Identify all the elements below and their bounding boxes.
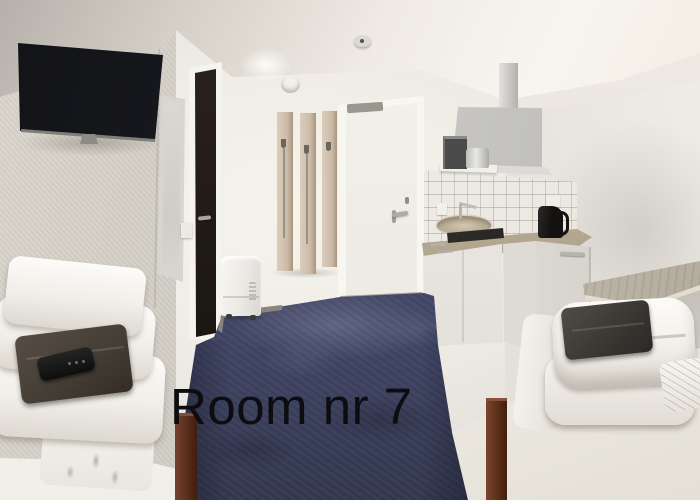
- tv-mount: [80, 134, 98, 144]
- dehumidifier-wheel: [250, 315, 256, 320]
- right-bed-frame: [486, 398, 507, 500]
- dehumidifier-vent: [249, 282, 256, 302]
- dehumidifier-wheel: [226, 314, 232, 319]
- remote-button: [68, 362, 71, 365]
- wrapped-pillow: [658, 357, 700, 413]
- faucet: [459, 203, 462, 219]
- folded-duvet: [3, 255, 147, 337]
- kettle-handle: [557, 211, 569, 236]
- coat-hook: [326, 142, 331, 151]
- coat-hanger-rod: [283, 148, 285, 238]
- cooking-pot: [466, 148, 489, 168]
- coat-rack-plank: [277, 112, 293, 271]
- light-switch: [181, 223, 192, 238]
- microwave: [443, 136, 467, 169]
- coat-hook: [304, 145, 309, 154]
- range-hood-chimney: [499, 63, 518, 108]
- coat-hook: [281, 139, 286, 148]
- coat-hanger-rod: [306, 154, 308, 244]
- room-number-caption: Room nr 7: [170, 377, 413, 436]
- coat-rack-plank: [300, 113, 316, 274]
- smoke-detector-dot: [360, 39, 364, 43]
- room-photo: Room nr 7: [0, 0, 700, 500]
- door-lock: [405, 197, 409, 204]
- remote-button: [75, 361, 78, 364]
- smoke-detector: [354, 35, 371, 47]
- wall-vent: [281, 76, 300, 93]
- coat-rack-plank: [322, 111, 337, 267]
- remote-button: [82, 360, 85, 363]
- cabinet-seam: [462, 250, 464, 342]
- power-outlet: [437, 203, 447, 215]
